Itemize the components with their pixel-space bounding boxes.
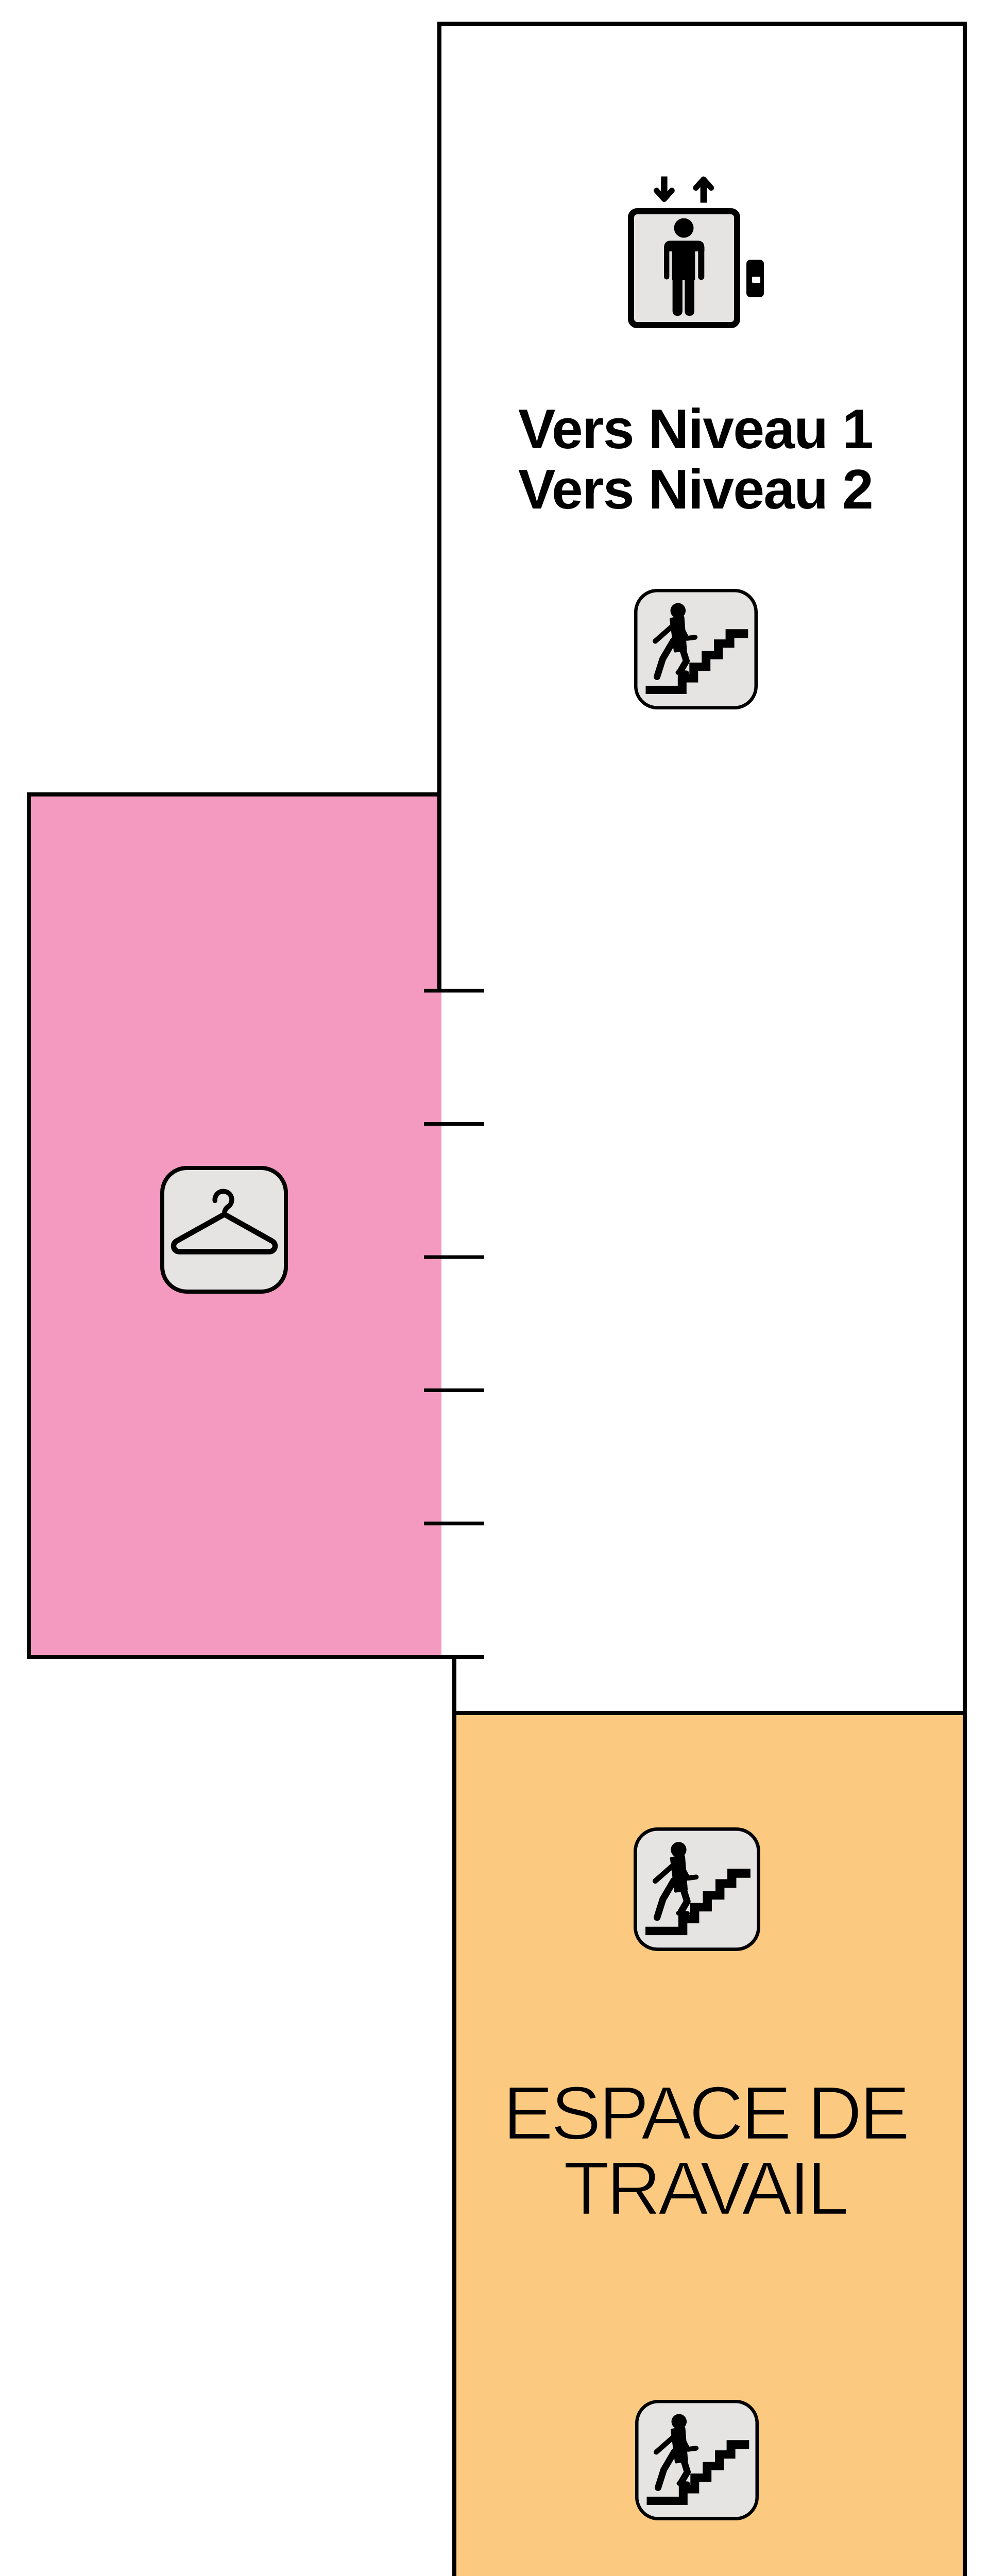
svg-text:ESPACE DE: ESPACE DE [503,2071,908,2156]
svg-text:TRAVAIL: TRAVAIL [564,2146,847,2231]
svg-text:Vers Niveau 2: Vers Niveau 2 [518,458,873,521]
svg-text:Vers Niveau 1: Vers Niveau 1 [518,398,873,461]
